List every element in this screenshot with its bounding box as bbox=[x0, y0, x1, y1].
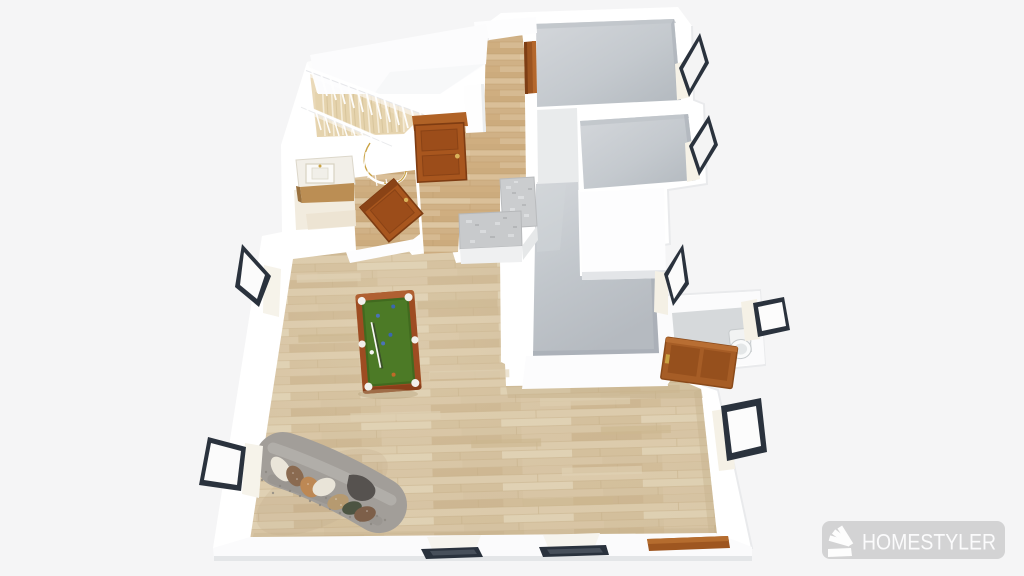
svg-text:HOMESTYLER: HOMESTYLER bbox=[862, 530, 996, 555]
